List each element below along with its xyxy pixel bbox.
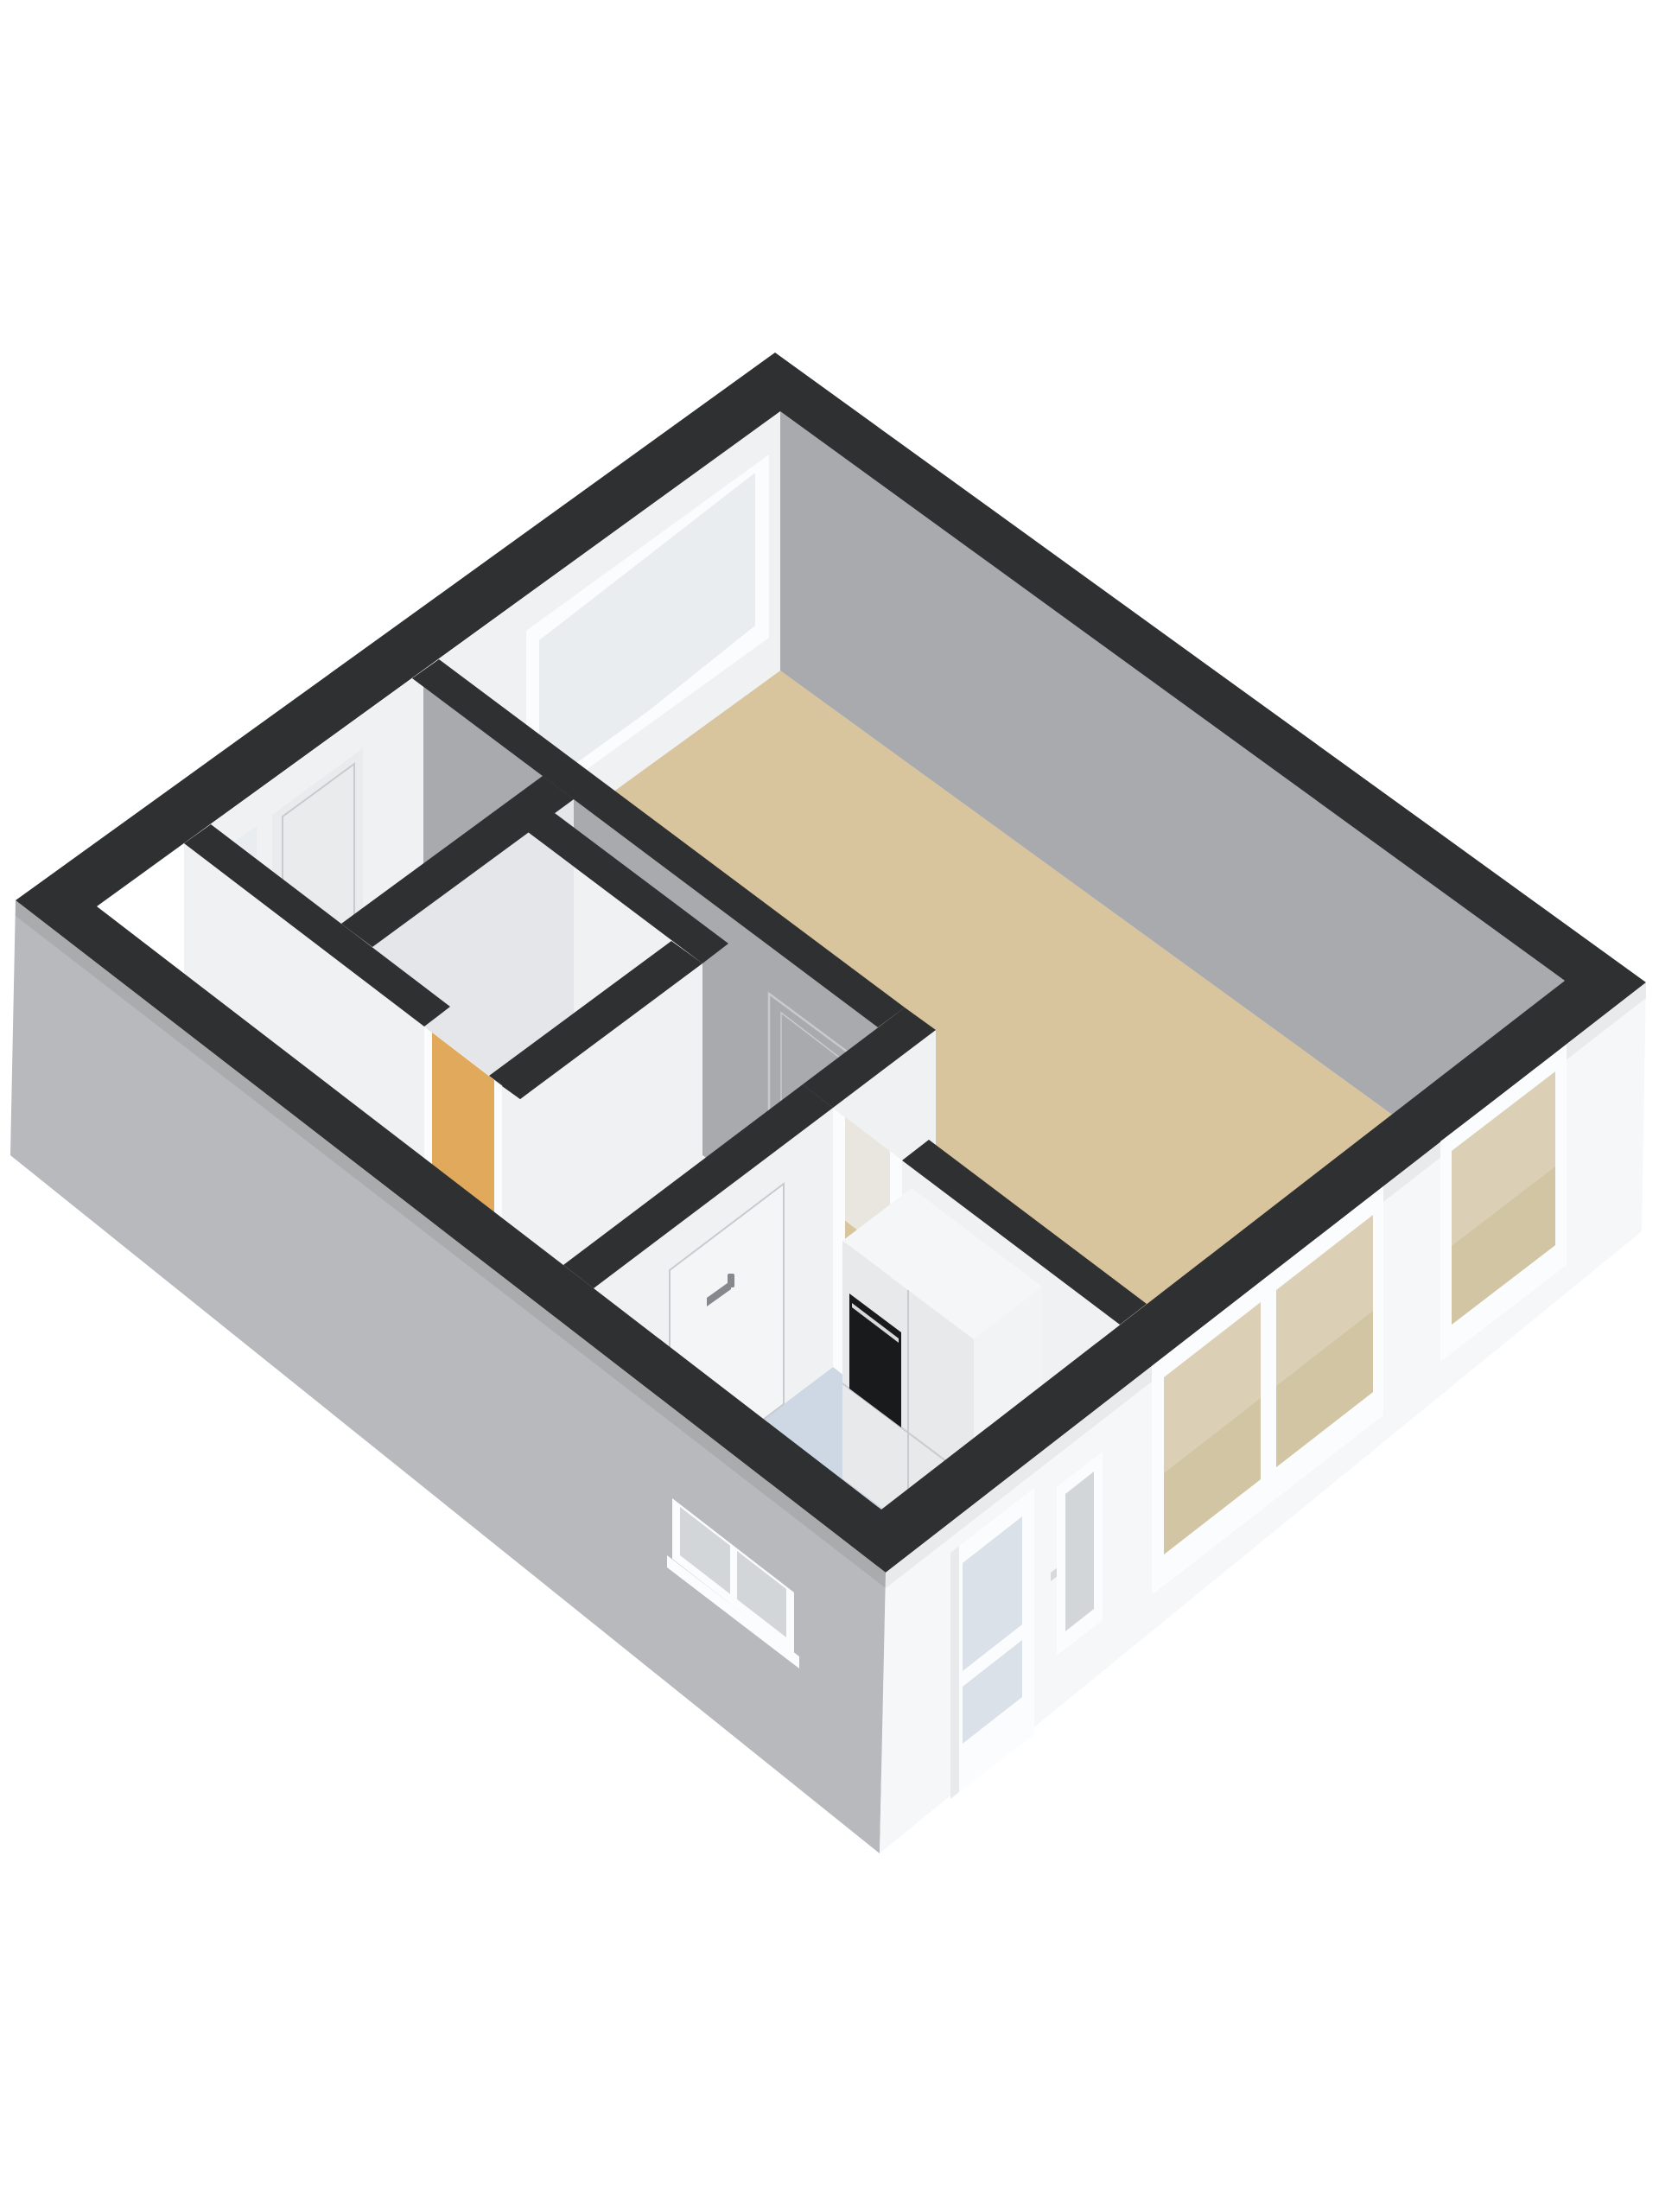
living-facade-window-mullion: [1261, 1287, 1276, 1489]
kitchen-door-handle-base: [728, 1274, 734, 1287]
floorplan-3d-render: [0, 0, 1659, 2212]
sidelight-window-glass: [1065, 1471, 1094, 1631]
front-door-reveal: [950, 1546, 959, 1799]
kitchen-slit-window-mullion: [730, 1545, 737, 1609]
